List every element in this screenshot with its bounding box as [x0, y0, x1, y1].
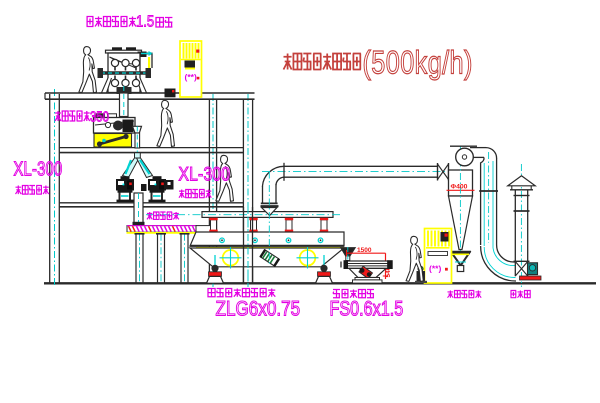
svg-text:XL-300: XL-300: [179, 163, 231, 185]
svg-text:XL-300: XL-300: [14, 157, 63, 180]
svg-text:(500kg/h): (500kg/h): [363, 46, 473, 82]
svg-text:1.5: 1.5: [136, 13, 154, 30]
svg-text:FS0.6x1.5: FS0.6x1.5: [330, 296, 404, 320]
svg-text:Φ400: Φ400: [451, 184, 468, 191]
svg-text:1500: 1500: [357, 247, 372, 254]
svg-text:ZLG6x0.75: ZLG6x0.75: [216, 298, 301, 321]
svg-text:350: 350: [90, 108, 109, 125]
svg-text:(**): (**): [185, 72, 197, 82]
svg-text:(**): (**): [429, 264, 441, 274]
